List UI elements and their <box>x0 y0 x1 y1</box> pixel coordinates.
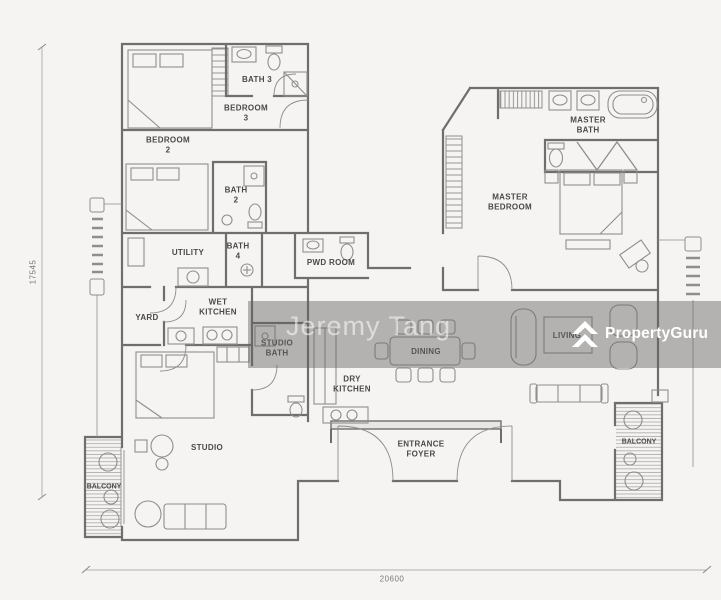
propertyguru-logo-text: PropertyGuru <box>605 325 708 343</box>
room-label-bedroom3: BEDROOM3 <box>224 104 268 125</box>
room-label-entrance-foyer: ENTRANCEFOYER <box>398 440 445 461</box>
floorplan-image: BATH 3 BEDROOM3 BEDROOM2 BATH2 UTILITY B… <box>0 0 721 600</box>
propertyguru-logo-icon <box>570 317 600 351</box>
room-labels: BATH 3 BEDROOM3 BEDROOM2 BATH2 UTILITY B… <box>0 0 721 600</box>
room-label-bath3: BATH 3 <box>242 75 272 85</box>
room-label-balcony-left: BALCONY <box>87 482 122 491</box>
room-label-wet-kitchen: WETKITCHEN <box>199 298 237 319</box>
room-label-dry-kitchen: DRYKITCHEN <box>333 375 371 396</box>
room-label-studio: STUDIO <box>191 443 223 453</box>
room-label-balcony-right: BALCONY <box>622 437 657 446</box>
dimension-label-width: 20600 <box>380 575 405 584</box>
room-label-yard: YARD <box>135 313 158 323</box>
watermark-band: Jeremy Tang PropertyGuru <box>248 301 721 368</box>
room-label-utility: UTILITY <box>172 248 204 258</box>
room-label-bath2: BATH2 <box>225 186 248 207</box>
room-label-master-bedroom: MASTERBEDROOM <box>488 193 532 214</box>
room-label-bath4: BATH4 <box>227 242 250 263</box>
dimension-label-height: 17545 <box>29 260 38 285</box>
room-label-bedroom2: BEDROOM2 <box>146 136 190 157</box>
room-label-pwd-room: PWD ROOM <box>307 258 355 268</box>
propertyguru-logo: PropertyGuru <box>570 317 708 351</box>
watermark-agent-name: Jeremy Tang <box>286 311 451 342</box>
room-label-master-bath: MASTERBATH <box>570 116 606 137</box>
